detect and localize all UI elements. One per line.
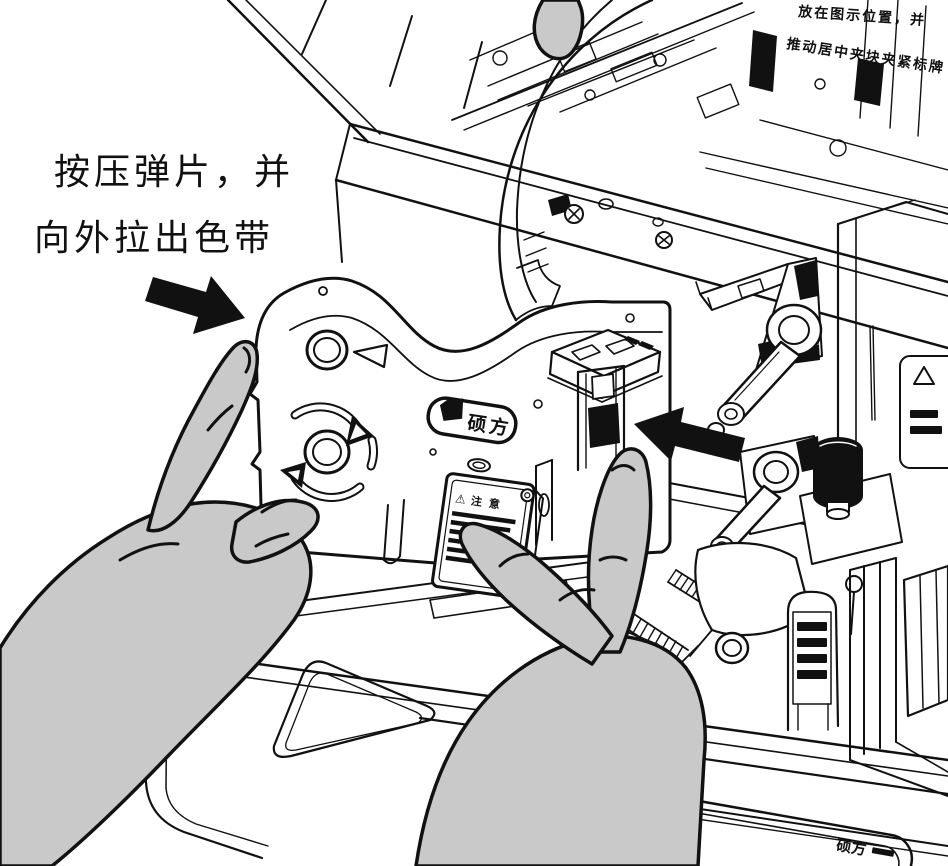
fine-print-line	[797, 638, 827, 647]
fine-print-line	[910, 410, 938, 418]
caption-line-2: 向外拉出色带	[34, 218, 274, 258]
tension-knob	[800, 437, 902, 564]
screw-icon	[521, 488, 535, 502]
front-groove	[274, 661, 435, 756]
wall-warning-label	[900, 356, 948, 468]
fine-print-line	[797, 670, 827, 679]
inset-caption-line-1: 放在图示位置，并	[797, 3, 927, 28]
lid-inset-illustration: 放在图示位置，并 推动居中夹块夹紧标牌	[452, 0, 948, 224]
warning-icon: ⚠	[454, 491, 467, 506]
screw-icon	[565, 205, 583, 223]
chassis-wall	[838, 200, 948, 470]
spring-tab-slot	[588, 403, 620, 448]
caption-line-1: 按压弹片，并	[54, 152, 294, 192]
inset-dark-part	[749, 30, 777, 92]
accessory-box	[904, 566, 948, 716]
wire-loop	[846, 576, 862, 592]
manual-illustration: 放在图示位置，并 推动居中夹块夹紧标牌	[0, 0, 948, 866]
fine-print-line	[797, 654, 827, 663]
left-arrow-icon	[145, 276, 245, 334]
caption: 按压弹片，并 向外拉出色带	[34, 152, 294, 258]
svg-text:硕方: 硕方	[835, 836, 868, 859]
fine-print-line	[910, 426, 942, 434]
brand-logo: 硕方	[835, 836, 895, 864]
inset-hand	[534, 0, 582, 59]
screw-icon	[656, 232, 672, 248]
media-guide-label	[788, 592, 838, 730]
lid-slats	[302, 0, 482, 108]
fine-print-line	[797, 622, 827, 631]
